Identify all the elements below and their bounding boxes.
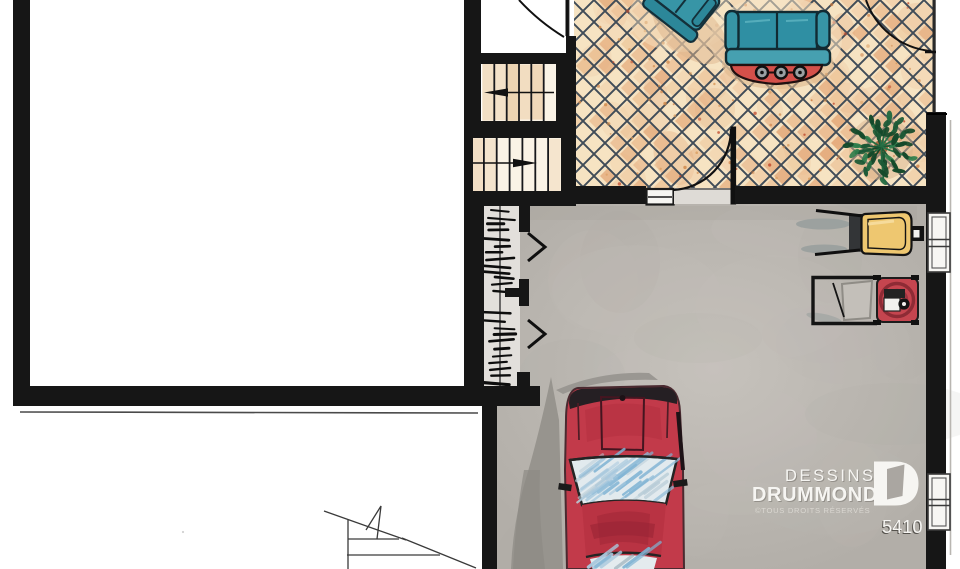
svg-text:©TOUS DROITS RÉSERVÉS: ©TOUS DROITS RÉSERVÉS xyxy=(755,506,870,515)
svg-text:DRUMMOND: DRUMMOND xyxy=(752,484,878,506)
svg-text:5410: 5410 xyxy=(882,517,922,537)
svg-text:DESSINS: DESSINS xyxy=(785,467,876,485)
